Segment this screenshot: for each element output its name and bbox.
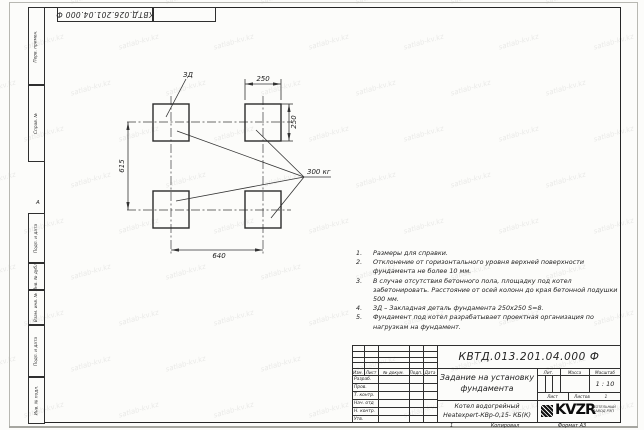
drawing-labels: 250 250 615 640 ЗД 300 кг (118, 71, 331, 260)
foundation-drawing: 250 250 615 640 ЗД 300 кг (0, 0, 644, 430)
centerlines (127, 96, 291, 255)
dim-640-bottom: 640 (212, 252, 226, 260)
foundation-pads (153, 104, 281, 228)
zd-label: ЗД (183, 71, 193, 79)
drawing-sheet: satlab-kv.kzsatlab-kv.kzsatlab-kv.kzsatl… (0, 0, 644, 430)
load-label: 300 кг (307, 168, 331, 176)
leader-lines (166, 79, 331, 218)
dim-250-right: 250 (290, 115, 298, 129)
dim-615-left: 615 (118, 159, 126, 173)
dimension-arrows (126, 82, 290, 251)
dim-250-top: 250 (256, 75, 270, 83)
